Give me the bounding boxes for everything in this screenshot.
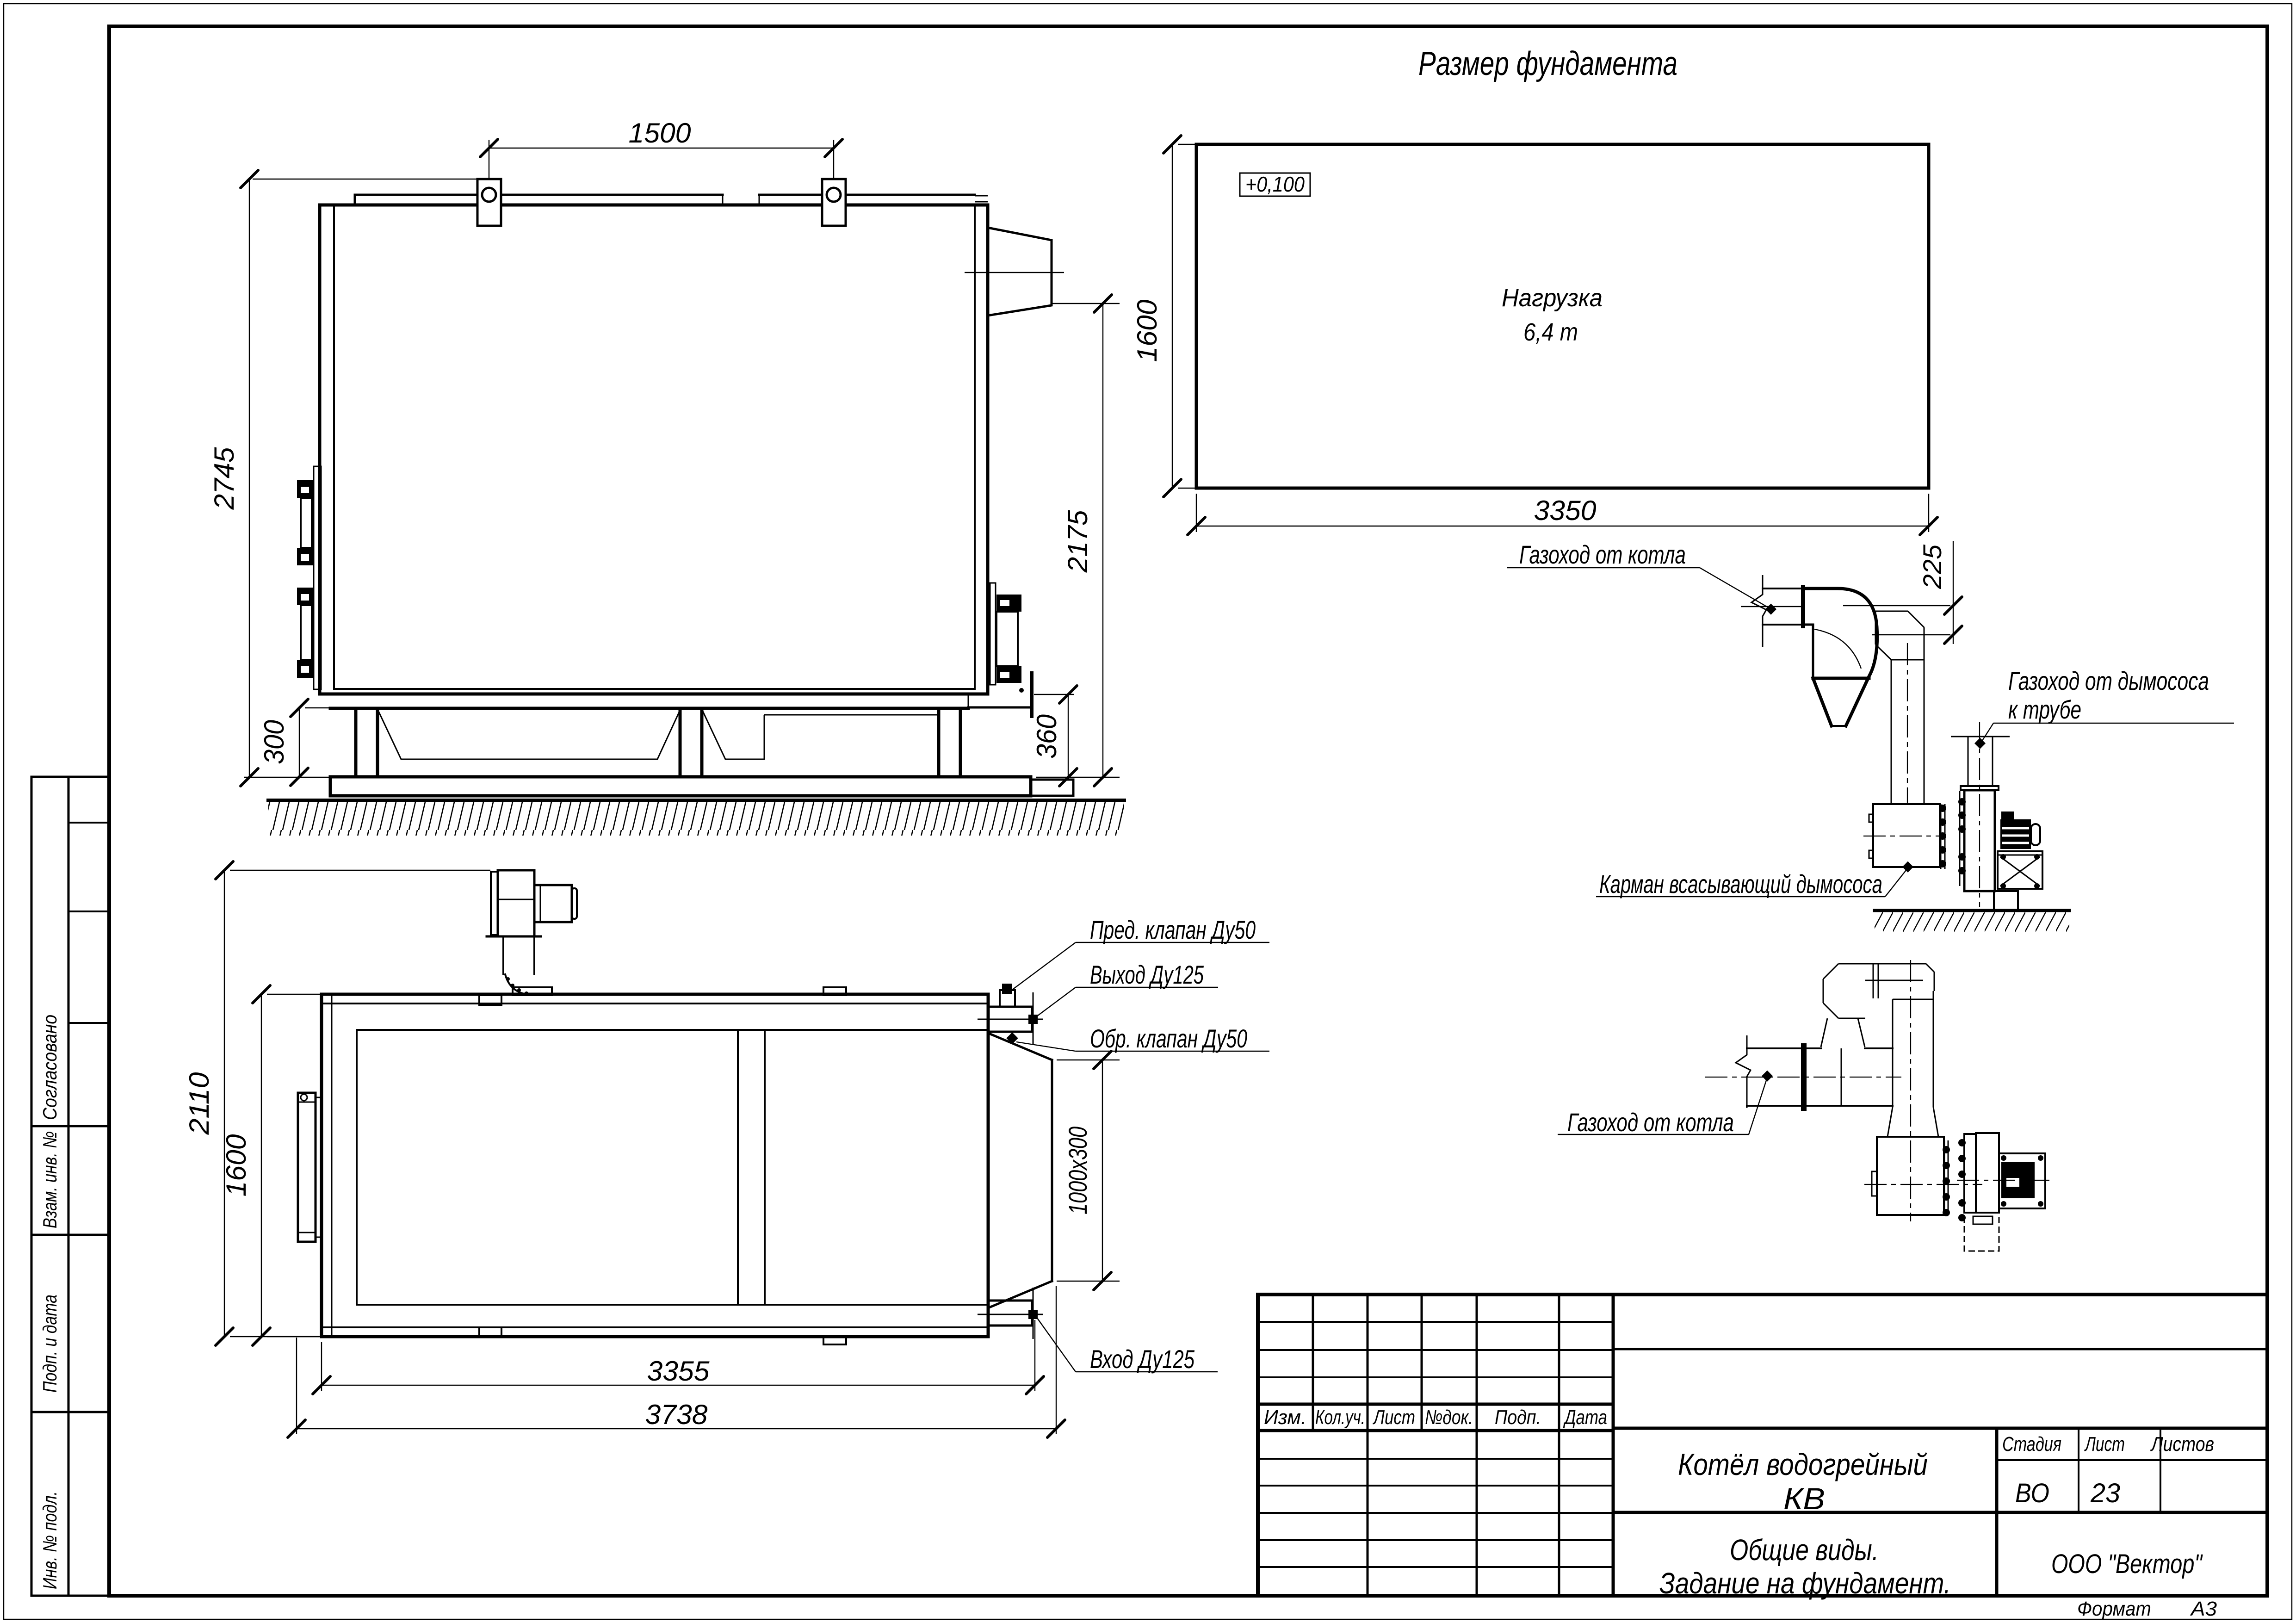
svg-text:Формат: Формат bbox=[2077, 1598, 2151, 1620]
svg-text:1600: 1600 bbox=[1132, 300, 1163, 362]
svg-text:3350: 3350 bbox=[1534, 495, 1597, 526]
svg-text:360: 360 bbox=[1031, 714, 1062, 759]
svg-text:Газоход от дымососа: Газоход от дымососа bbox=[2008, 666, 2209, 695]
svg-text:1500: 1500 bbox=[629, 118, 691, 149]
svg-text:6,4 т: 6,4 т bbox=[1523, 318, 1578, 346]
svg-text:Стадия: Стадия bbox=[2002, 1433, 2061, 1456]
svg-text:1600: 1600 bbox=[221, 1134, 252, 1197]
svg-text:Взам. инв. №: Взам. инв. № bbox=[39, 1131, 61, 1228]
svg-text:Пред. клапан Ду50: Пред. клапан Ду50 bbox=[1090, 915, 1256, 944]
svg-text:Кол.уч.: Кол.уч. bbox=[1315, 1406, 1365, 1429]
svg-text:300: 300 bbox=[259, 720, 290, 764]
svg-text:2745: 2745 bbox=[209, 447, 240, 510]
svg-text:+0,100: +0,100 bbox=[1245, 172, 1305, 196]
svg-text:Дата: Дата bbox=[1563, 1406, 1607, 1429]
svg-text:А3: А3 bbox=[2190, 1598, 2217, 1620]
svg-text:Котёл водогрейный: Котёл водогрейный bbox=[1678, 1447, 1928, 1481]
svg-text:3355: 3355 bbox=[647, 1356, 710, 1387]
svg-text:Согласовано: Согласовано bbox=[39, 1015, 61, 1120]
svg-text:1000х300: 1000х300 bbox=[1063, 1127, 1092, 1214]
svg-text:Карман всасывающий дымососа: Карман всасывающий дымососа bbox=[1599, 869, 1882, 898]
svg-text:Обр. клапан Ду50: Обр. клапан Ду50 bbox=[1090, 1024, 1247, 1053]
svg-text:Нагрузка: Нагрузка bbox=[1502, 284, 1603, 312]
svg-text:Инв. № подл.: Инв. № подл. bbox=[39, 1491, 61, 1589]
svg-text:Общие виды.: Общие виды. bbox=[1730, 1533, 1879, 1567]
svg-text:Листов: Листов bbox=[2150, 1433, 2214, 1456]
svg-text:23: 23 bbox=[2090, 1478, 2120, 1508]
svg-text:Газоход от котла: Газоход от котла bbox=[1567, 1108, 1734, 1137]
svg-text:3738: 3738 bbox=[645, 1399, 708, 1430]
svg-text:Лист: Лист bbox=[2084, 1433, 2125, 1456]
svg-text:2175: 2175 bbox=[1062, 510, 1093, 573]
svg-text:Выход Ду125: Выход Ду125 bbox=[1090, 960, 1204, 989]
svg-text:Изм.: Изм. bbox=[1264, 1406, 1306, 1429]
svg-text:КВ: КВ bbox=[1783, 1481, 1825, 1516]
svg-text:Подп.: Подп. bbox=[1495, 1406, 1541, 1429]
svg-text:ООО "Вектор": ООО "Вектор" bbox=[2051, 1549, 2203, 1579]
svg-text:№док.: №док. bbox=[1425, 1406, 1473, 1429]
svg-text:Размер фундамента: Размер фундамента bbox=[1418, 45, 1677, 82]
svg-text:Подп. и дата: Подп. и дата bbox=[39, 1295, 61, 1393]
svg-text:225: 225 bbox=[1918, 544, 1947, 589]
svg-text:2110: 2110 bbox=[184, 1072, 215, 1135]
svg-text:к трубе: к трубе bbox=[2008, 695, 2081, 724]
svg-text:Вход Ду125: Вход Ду125 bbox=[1090, 1344, 1195, 1374]
svg-text:Лист: Лист bbox=[1373, 1406, 1415, 1429]
svg-text:Газоход от котла: Газоход от котла bbox=[1519, 540, 1686, 569]
svg-text:Задание на фундамент.: Задание на фундамент. bbox=[1659, 1567, 1951, 1600]
svg-text:ВО: ВО bbox=[2015, 1478, 2049, 1508]
